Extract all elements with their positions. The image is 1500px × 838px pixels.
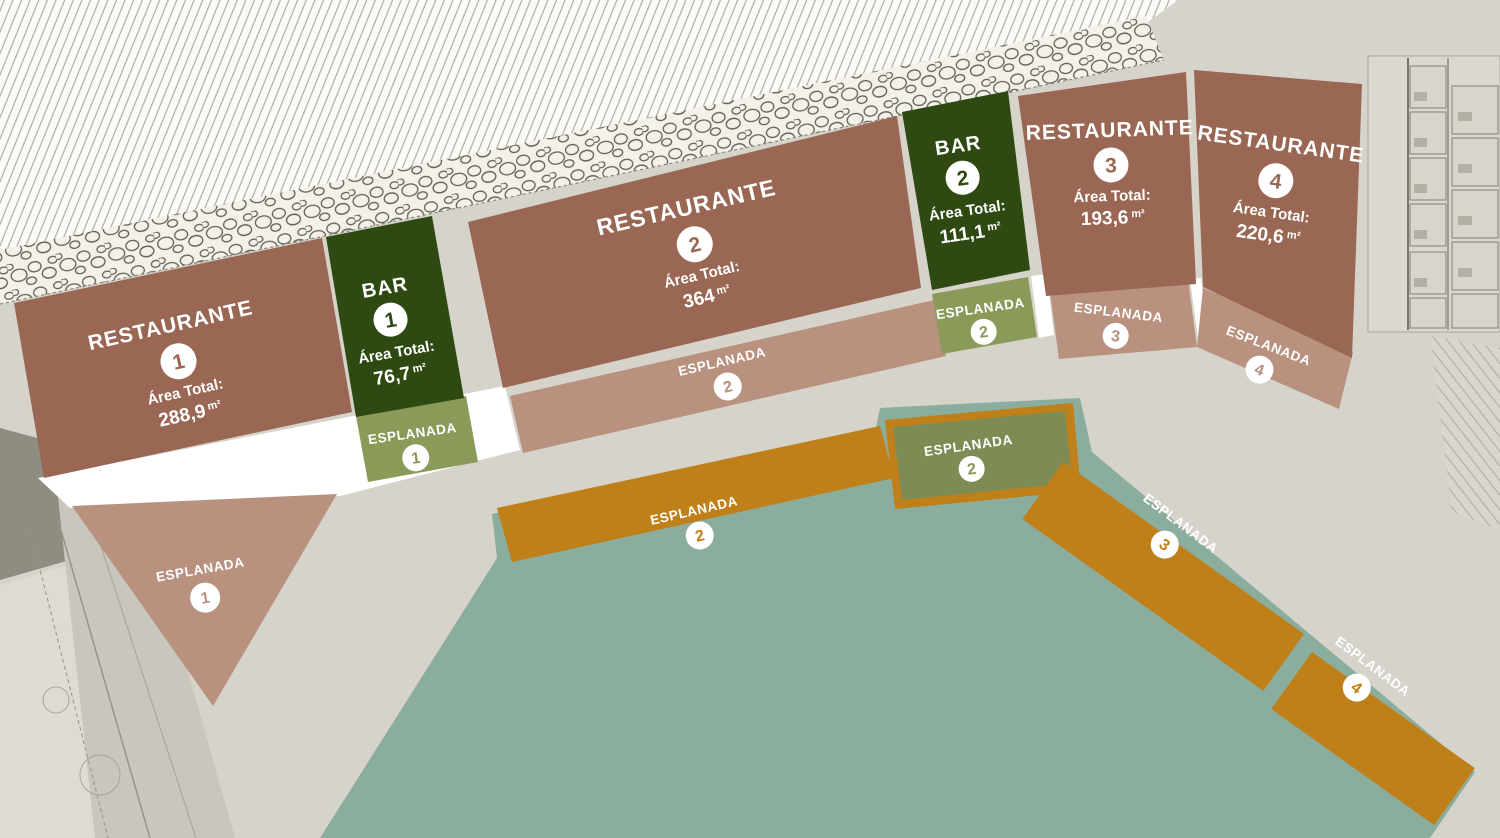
site-plan-svg: RESTAURANTE 1 Área Total: 288,9m² BAR 1 … bbox=[0, 0, 1500, 838]
zone-number: 3 bbox=[1105, 154, 1117, 177]
zone-restaurante-3[interactable] bbox=[1018, 72, 1196, 296]
building-floor-plan bbox=[1368, 56, 1500, 332]
area-label: Área Total: bbox=[1073, 187, 1151, 207]
site-plan: RESTAURANTE 1 Área Total: 288,9m² BAR 1 … bbox=[0, 0, 1500, 838]
